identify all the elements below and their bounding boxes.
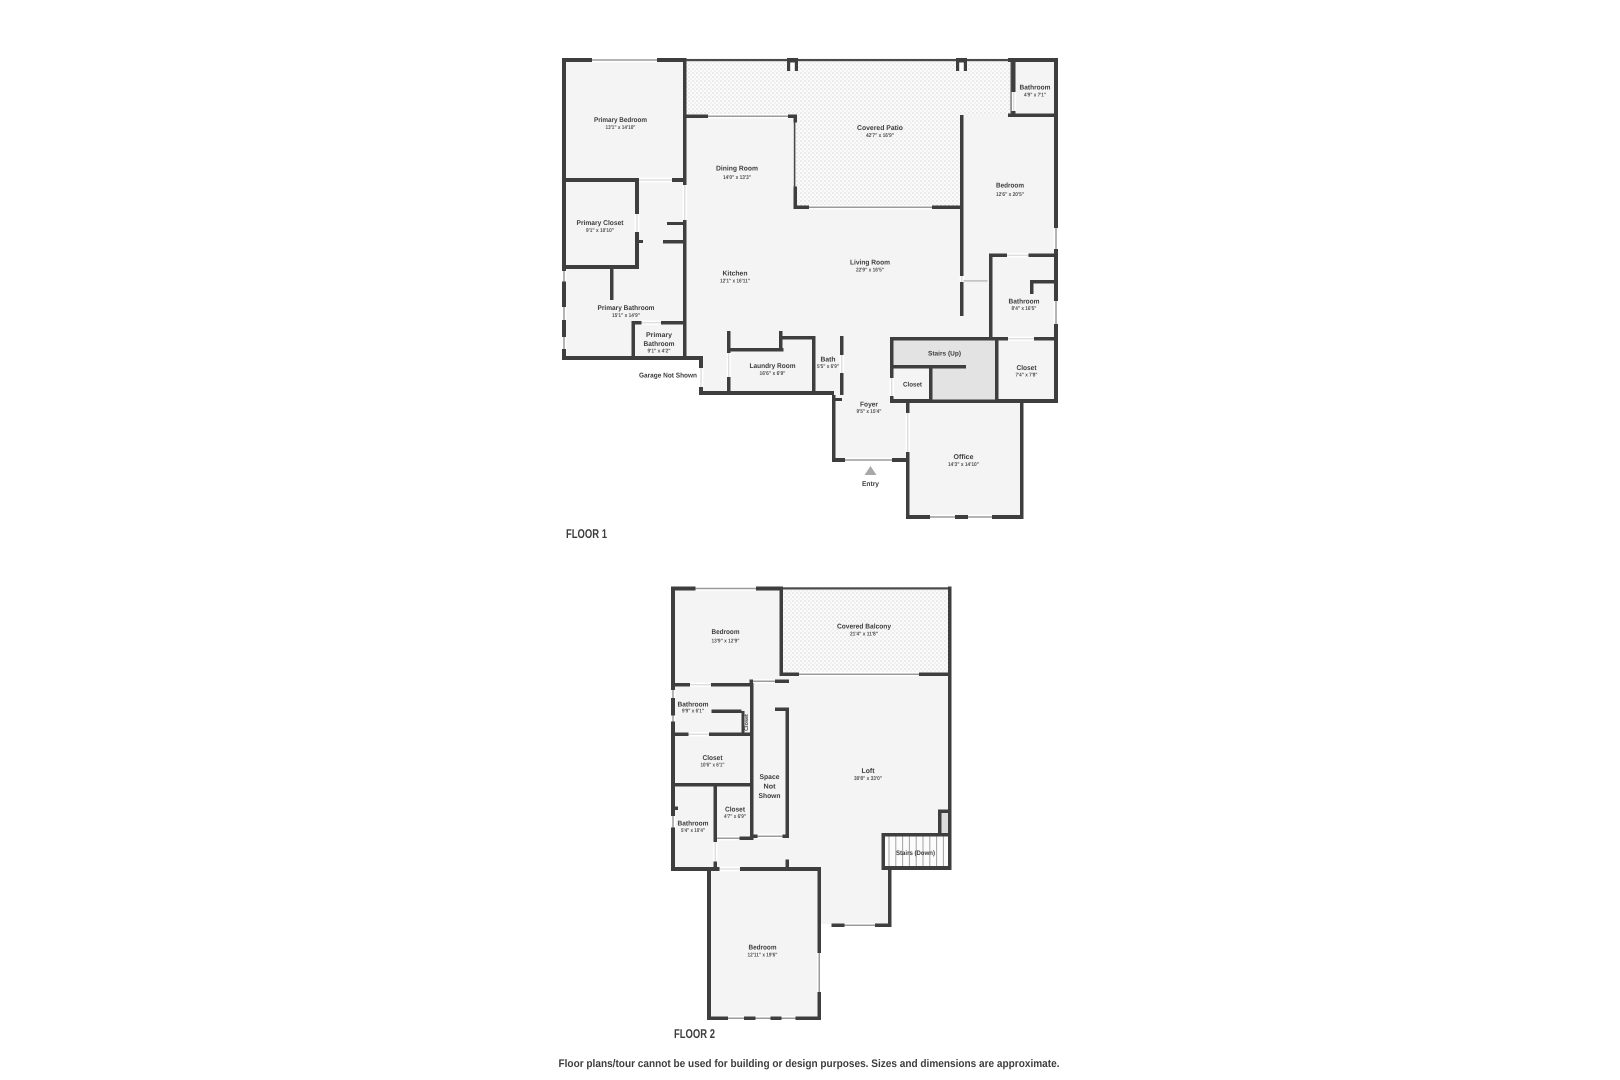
svg-text:Covered Patio: Covered Patio bbox=[857, 125, 903, 132]
svg-text:22'9" x 16'5": 22'9" x 16'5" bbox=[856, 268, 884, 274]
svg-text:Bath: Bath bbox=[821, 357, 836, 364]
svg-text:4'9" x 7'1": 4'9" x 7'1" bbox=[1024, 93, 1046, 99]
svg-text:Bathroom: Bathroom bbox=[644, 341, 675, 348]
svg-text:Kitchen: Kitchen bbox=[723, 271, 748, 278]
svg-text:Bedroom: Bedroom bbox=[712, 629, 740, 636]
svg-text:Bathroom: Bathroom bbox=[678, 821, 709, 828]
svg-text:FLOOR 1: FLOOR 1 bbox=[566, 526, 607, 541]
svg-text:9'5" x 15'4": 9'5" x 15'4" bbox=[857, 409, 882, 415]
svg-text:4'7" x 6'9": 4'7" x 6'9" bbox=[724, 814, 746, 820]
svg-text:Shown: Shown bbox=[759, 793, 781, 800]
svg-text:13'9" x 12'9": 13'9" x 12'9" bbox=[712, 639, 740, 645]
svg-text:5'4" x 10'4": 5'4" x 10'4" bbox=[681, 828, 705, 834]
svg-text:Closet: Closet bbox=[703, 755, 724, 762]
svg-text:16'6" x 6'9": 16'6" x 6'9" bbox=[760, 371, 786, 377]
svg-text:7'4" x 7'8": 7'4" x 7'8" bbox=[1016, 373, 1038, 379]
svg-text:Not: Not bbox=[764, 784, 777, 791]
svg-text:12'11" x 19'6": 12'11" x 19'6" bbox=[748, 953, 778, 959]
svg-text:30'8" x 33'0": 30'8" x 33'0" bbox=[854, 776, 882, 782]
svg-text:Covered Balcony: Covered Balcony bbox=[837, 624, 891, 631]
svg-text:Bathroom: Bathroom bbox=[1020, 85, 1051, 92]
svg-text:9'1" x 10'10": 9'1" x 10'10" bbox=[586, 228, 614, 234]
svg-text:42'7" x 16'9": 42'7" x 16'9" bbox=[866, 133, 894, 139]
svg-text:Laundry Room: Laundry Room bbox=[750, 363, 796, 370]
svg-text:13'1" x 14'10": 13'1" x 14'10" bbox=[606, 125, 636, 131]
svg-text:14'3" x 14'10": 14'3" x 14'10" bbox=[948, 462, 979, 468]
svg-text:Closet: Closet bbox=[1017, 365, 1038, 372]
svg-text:Office: Office bbox=[954, 454, 974, 461]
svg-text:14'0" x 13'3": 14'0" x 13'3" bbox=[723, 175, 751, 181]
svg-text:12'1" x 16'11": 12'1" x 16'11" bbox=[720, 279, 750, 285]
svg-text:Closet: Closet bbox=[744, 714, 750, 731]
svg-text:Closet: Closet bbox=[725, 807, 746, 814]
svg-text:Bedroom: Bedroom bbox=[996, 183, 1024, 190]
svg-text:12'6" x 20'5": 12'6" x 20'5" bbox=[996, 192, 1024, 198]
svg-text:5'5" x 6'9": 5'5" x 6'9" bbox=[817, 364, 839, 370]
svg-text:Dining Room: Dining Room bbox=[716, 166, 758, 173]
svg-text:Loft: Loft bbox=[862, 768, 876, 775]
svg-text:21'4" x 11'8": 21'4" x 11'8" bbox=[850, 632, 878, 638]
svg-text:Bathroom: Bathroom bbox=[1009, 299, 1040, 306]
svg-text:8'4" x 16'5": 8'4" x 16'5" bbox=[1012, 306, 1037, 312]
svg-text:9'1" x 4'2": 9'1" x 4'2" bbox=[648, 349, 671, 355]
svg-text:Floor plans/tour cannot be use: Floor plans/tour cannot be used for buil… bbox=[559, 1058, 1060, 1070]
svg-text:FLOOR 2: FLOOR 2 bbox=[674, 1026, 715, 1041]
svg-text:Stairs (Down): Stairs (Down) bbox=[896, 850, 935, 857]
svg-text:Primary Bedroom: Primary Bedroom bbox=[594, 117, 647, 124]
svg-text:Entry: Entry bbox=[862, 481, 879, 488]
svg-text:Living Room: Living Room bbox=[850, 260, 890, 267]
svg-text:Primary Bathroom: Primary Bathroom bbox=[598, 305, 655, 312]
svg-text:Foyer: Foyer bbox=[860, 402, 878, 409]
svg-text:15'1" x 14'9": 15'1" x 14'9" bbox=[612, 313, 640, 319]
svg-text:Bathroom: Bathroom bbox=[678, 702, 709, 709]
svg-text:Closet: Closet bbox=[903, 382, 923, 389]
svg-text:10'6" x 6'1": 10'6" x 6'1" bbox=[701, 763, 725, 769]
svg-text:Primary Closet: Primary Closet bbox=[577, 220, 625, 227]
svg-text:Space: Space bbox=[760, 774, 780, 781]
svg-text:Bedroom: Bedroom bbox=[749, 945, 777, 952]
svg-text:9'9" x 6'1": 9'9" x 6'1" bbox=[682, 709, 704, 715]
svg-text:Primary: Primary bbox=[646, 332, 672, 339]
svg-text:Stairs (Up): Stairs (Up) bbox=[928, 351, 961, 358]
svg-text:Garage Not Shown: Garage Not Shown bbox=[639, 373, 697, 380]
